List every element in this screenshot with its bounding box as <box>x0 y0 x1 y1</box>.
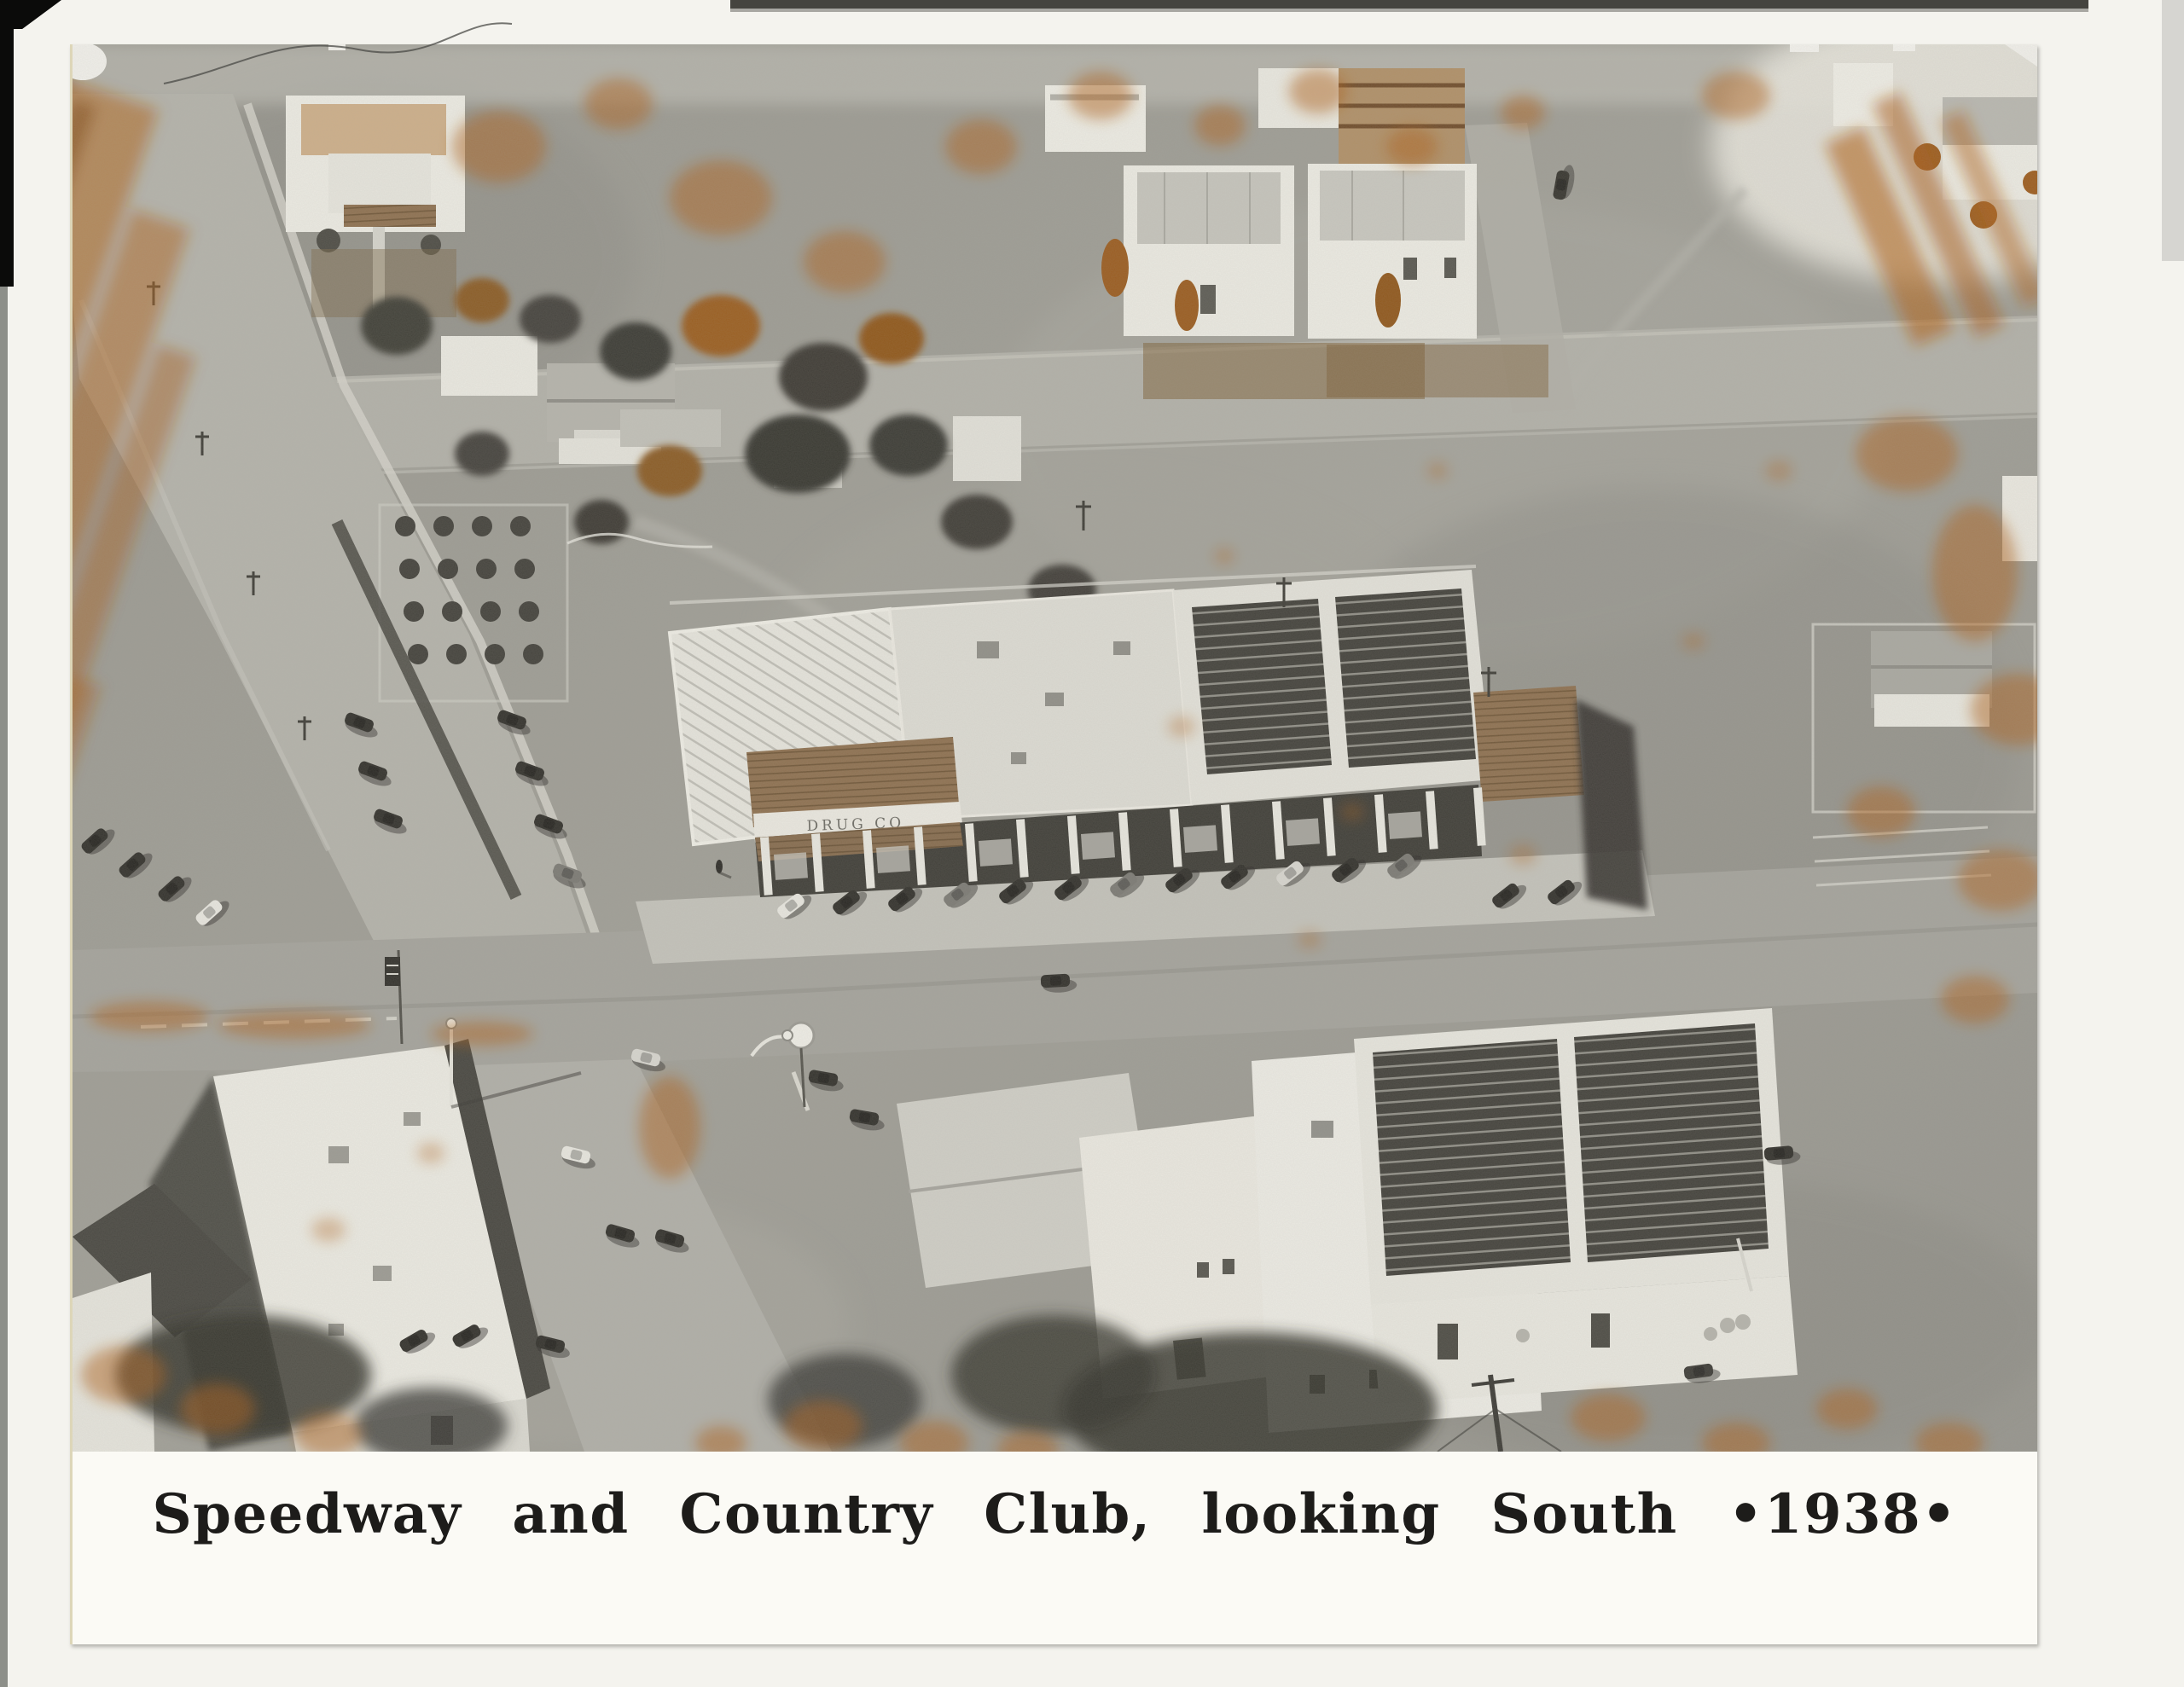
photo-caption: Speedway and Country Club, looking South… <box>152 1482 1957 1546</box>
aerial-photo: DRUG CO <box>73 44 2037 1452</box>
scanner-edge-top-strip <box>730 0 2088 9</box>
caption-strip: Speedway and Country Club, looking South… <box>73 1452 2037 1644</box>
scanner-edge-right-gray-strip <box>2162 0 2184 261</box>
aerial-photo-art: DRUG CO <box>73 44 2037 1452</box>
scanner-edge-top-strip-light <box>730 9 2088 12</box>
scanned-photograph-page: DRUG CO <box>0 0 2184 1687</box>
scanner-edge-corner-wedge <box>14 0 61 29</box>
film-grain <box>73 44 2037 1452</box>
scanner-edge-left-gray-strip <box>0 287 8 1687</box>
scanner-edge-left-black-strip <box>0 0 14 287</box>
photo-print: DRUG CO <box>70 44 2037 1644</box>
